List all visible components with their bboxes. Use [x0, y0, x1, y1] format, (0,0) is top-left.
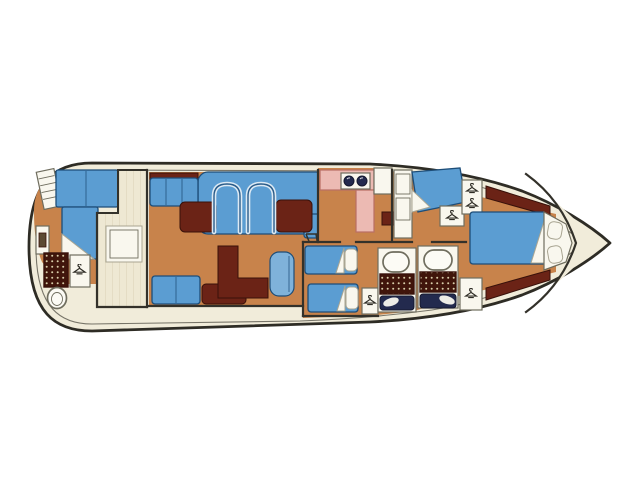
aft-hull-seat-cushion [39, 233, 46, 247]
forward-cabin [470, 174, 600, 312]
aft-double-berth-top [56, 170, 118, 207]
guest-locker-tall [462, 180, 482, 214]
head-port-toilet [383, 252, 409, 272]
galley-landing [374, 168, 392, 194]
head-port-shower-grid [380, 274, 414, 294]
pillow [346, 287, 358, 309]
aft-wardrobe [70, 255, 90, 287]
head-starboard-shower-grid [420, 272, 456, 292]
saloon-table-left [180, 202, 216, 232]
pillow [547, 221, 564, 240]
head-starboard-toilet [424, 250, 452, 270]
aft-shower-tray [44, 253, 68, 287]
pillow [345, 249, 357, 271]
forward-locker [460, 278, 482, 310]
guest-locker-small [440, 206, 464, 226]
deck-table [106, 226, 142, 262]
vanity-unit [394, 170, 412, 238]
saloon-table-right [276, 200, 312, 232]
helm-chair [270, 252, 294, 296]
twin-wardrobe [362, 288, 378, 314]
yacht-floorplan [0, 0, 640, 480]
galley-counter-side [356, 190, 374, 232]
boat-floorplan-canvas [0, 0, 640, 480]
pillow [547, 245, 564, 264]
